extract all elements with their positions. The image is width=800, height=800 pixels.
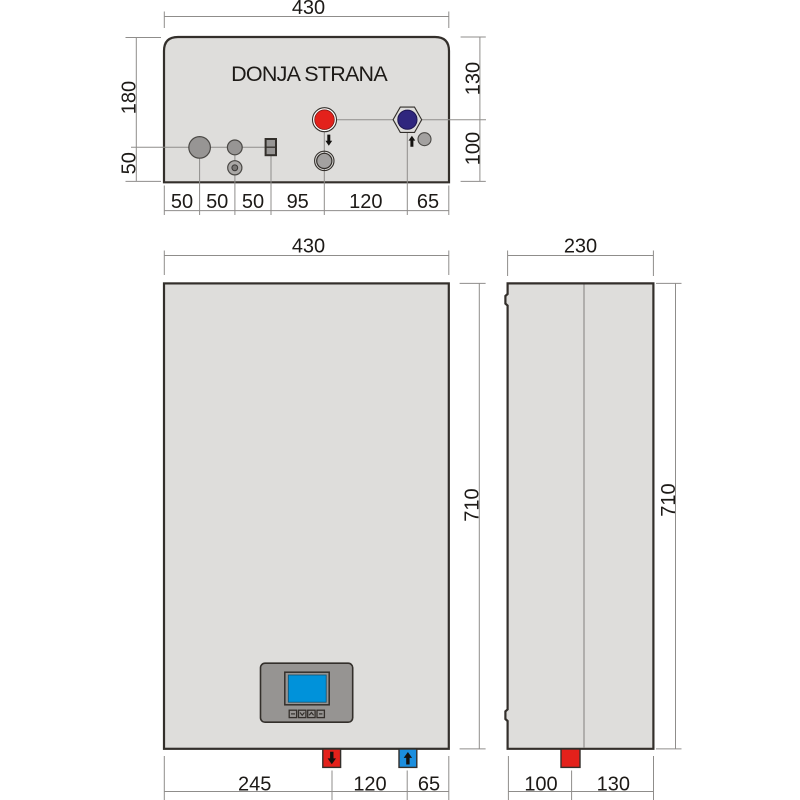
svg-text:430: 430: [292, 236, 325, 258]
svg-text:50: 50: [171, 191, 193, 213]
svg-text:430: 430: [292, 0, 325, 19]
svg-text:95: 95: [287, 191, 309, 213]
svg-text:100: 100: [524, 774, 557, 796]
svg-text:180: 180: [118, 81, 140, 114]
svg-text:230: 230: [564, 236, 597, 258]
svg-text:130: 130: [597, 774, 630, 796]
svg-text:120: 120: [353, 774, 386, 796]
svg-text:50: 50: [206, 191, 228, 213]
svg-text:710: 710: [658, 483, 680, 516]
svg-text:710: 710: [462, 488, 484, 521]
svg-text:DONJA STRANA: DONJA STRANA: [231, 62, 388, 86]
svg-text:50: 50: [118, 152, 140, 174]
svg-text:50: 50: [242, 191, 264, 213]
svg-text:65: 65: [417, 191, 439, 213]
svg-text:245: 245: [238, 774, 271, 796]
svg-text:120: 120: [349, 191, 382, 213]
svg-text:130: 130: [462, 62, 484, 95]
svg-text:65: 65: [418, 774, 440, 796]
svg-text:100: 100: [462, 132, 484, 165]
